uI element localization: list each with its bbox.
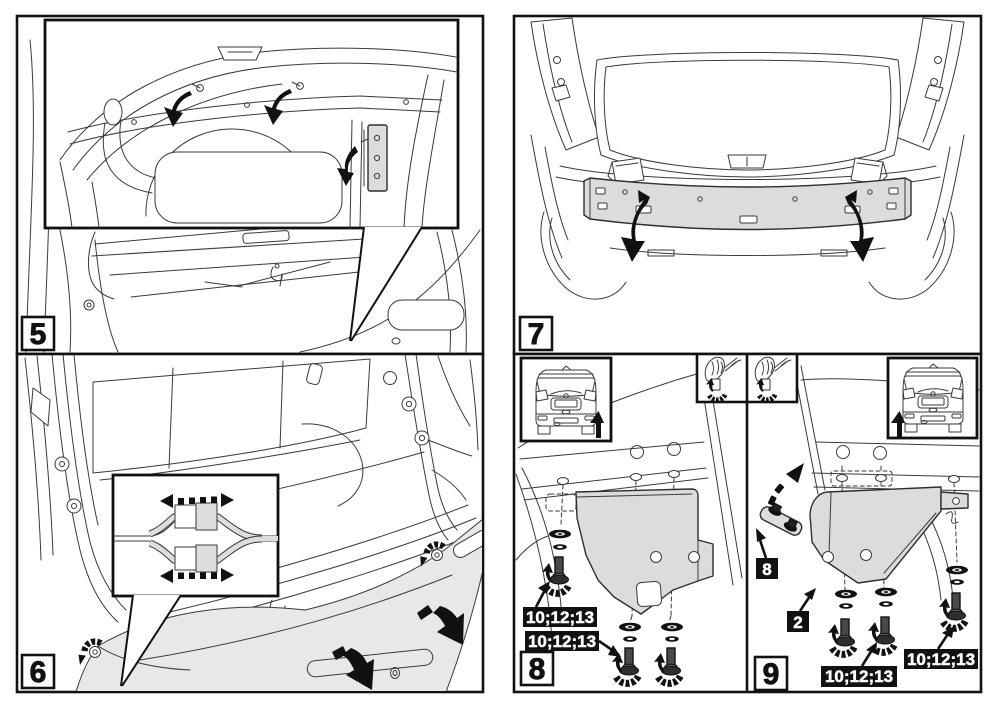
svg-text:10;12;13: 10;12;13 [825, 667, 893, 686]
svg-text:7: 7 [528, 318, 545, 351]
svg-text:5: 5 [30, 318, 47, 351]
svg-text:10;12;13: 10;12;13 [528, 632, 596, 651]
svg-text:10;12;13: 10;12;13 [907, 650, 975, 669]
svg-text:9: 9 [763, 658, 780, 691]
svg-text:8: 8 [529, 653, 546, 686]
svg-text:10;12;13: 10;12;13 [526, 608, 594, 627]
svg-text:8: 8 [762, 560, 771, 579]
svg-text:2: 2 [793, 613, 802, 632]
svg-text:6: 6 [30, 656, 47, 689]
